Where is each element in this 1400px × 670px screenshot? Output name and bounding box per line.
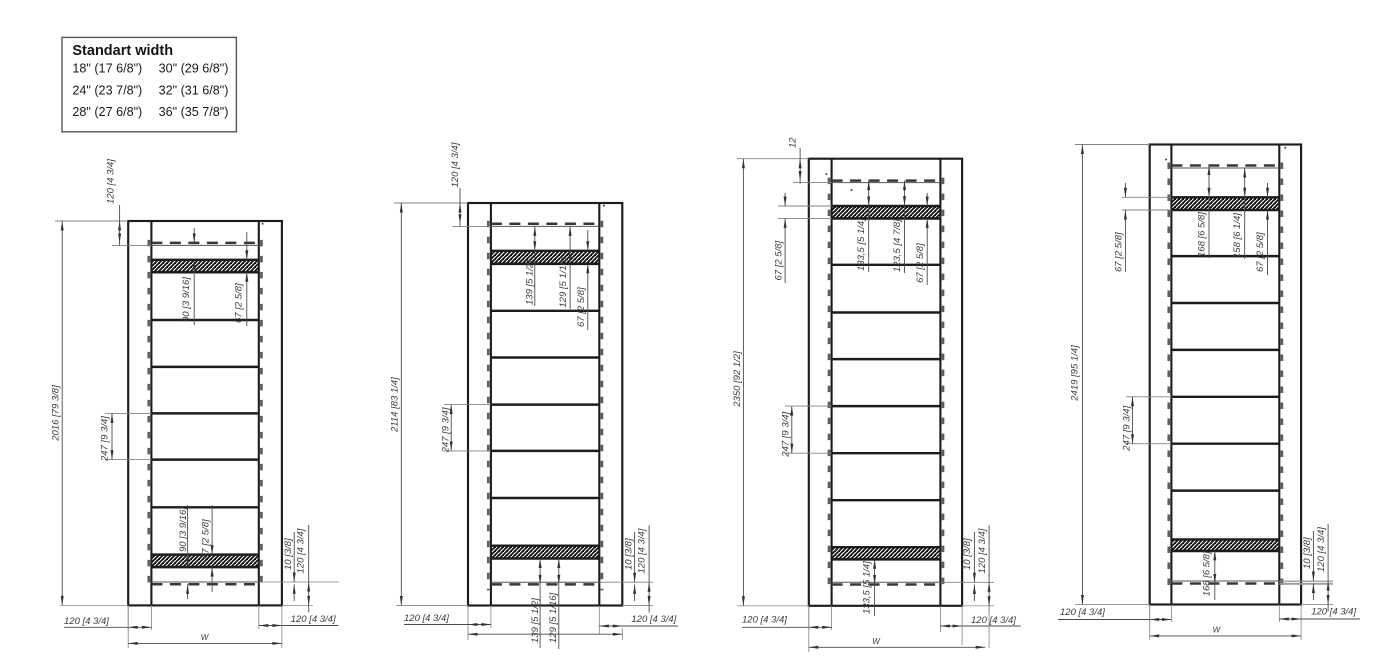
svg-text:133,5 [5 1/4]: 133,5 [5 1/4] <box>862 561 873 614</box>
svg-text:2016 [79 3/8]: 2016 [79 3/8] <box>51 385 62 442</box>
svg-text:129 [5 1/16]: 129 [5 1/16] <box>548 592 559 643</box>
svg-text:28" (27 6/8"): 28" (27 6/8") <box>72 105 142 119</box>
svg-text:12: 12 <box>788 137 799 148</box>
svg-text:158 [6 1/4]: 158 [6 1/4] <box>1232 213 1243 258</box>
svg-text:120 [4 3/4]: 120 [4 3/4] <box>1316 527 1327 572</box>
svg-text:120 [4 3/4]: 120 [4 3/4] <box>971 615 1016 626</box>
svg-text:10 [3/8]: 10 [3/8] <box>283 538 294 570</box>
svg-text:10 [3/8]: 10 [3/8] <box>962 538 973 570</box>
svg-text:67 [2 5/8]: 67 [2 5/8] <box>774 241 785 281</box>
svg-text:2350 [92 1/2]: 2350 [92 1/2] <box>732 351 743 408</box>
svg-text:247 [9 3/4]: 247 [9 3/4] <box>440 407 451 453</box>
svg-text:10 [3/8]: 10 [3/8] <box>1302 537 1313 569</box>
svg-text:67 [2 5/8]: 67 [2 5/8] <box>201 519 212 559</box>
svg-text:120 [4 3/4]: 120 [4 3/4] <box>105 159 116 204</box>
svg-text:133,5 [5 1/4]: 133,5 [5 1/4] <box>856 218 867 271</box>
svg-text:67 [2 5/8]: 67 [2 5/8] <box>576 287 587 327</box>
svg-text:120 [4 3/4]: 120 [4 3/4] <box>450 142 461 187</box>
svg-text:123,5 [4 7/8]: 123,5 [4 7/8] <box>892 219 903 272</box>
svg-text:139 [5 1/2]: 139 [5 1/2] <box>530 598 541 643</box>
svg-text:2419 [95 1/4]: 2419 [95 1/4] <box>1070 345 1081 402</box>
svg-text:120 [4 3/4]: 120 [4 3/4] <box>1060 607 1105 618</box>
svg-text:120 [4 3/4]: 120 [4 3/4] <box>64 616 109 627</box>
svg-text:67 [2 5/8]: 67 [2 5/8] <box>1255 232 1266 272</box>
svg-text:247 [9 3/4]: 247 [9 3/4] <box>100 416 111 462</box>
svg-text:168 [6 5/8]: 168 [6 5/8] <box>1202 551 1213 596</box>
svg-text:120 [4 3/4]: 120 [4 3/4] <box>404 613 449 624</box>
svg-text:120 [4 3/4]: 120 [4 3/4] <box>977 528 988 573</box>
svg-text:67 [2 5/8]: 67 [2 5/8] <box>234 283 245 323</box>
svg-text:129 [5 1/16]: 129 [5 1/16] <box>558 257 569 308</box>
svg-text:139 [5 1/2]: 139 [5 1/2] <box>525 260 536 305</box>
svg-text:120 [4 3/4]: 120 [4 3/4] <box>291 614 336 625</box>
svg-text:120 [4 3/4]: 120 [4 3/4] <box>637 528 648 573</box>
svg-text:2114 [83 1/4]: 2114 [83 1/4] <box>390 377 401 433</box>
svg-text:90 [3 9/16]: 90 [3 9/16] <box>178 507 189 552</box>
svg-text:10 [3/8]: 10 [3/8] <box>624 538 635 570</box>
svg-text:90 [3 9/16]: 90 [3 9/16] <box>181 277 192 322</box>
svg-text:32" (31 6/8"): 32" (31 6/8") <box>159 83 229 97</box>
svg-text:24" (23 7/8"): 24" (23 7/8") <box>72 83 142 97</box>
svg-text:247 [9 3/4]: 247 [9 3/4] <box>780 411 791 457</box>
svg-text:36" (35 7/8"): 36" (35 7/8") <box>159 105 229 119</box>
svg-text:120 [4 3/4]: 120 [4 3/4] <box>296 528 307 573</box>
svg-text:120 [4 3/4]: 120 [4 3/4] <box>1311 607 1356 618</box>
svg-text:30" (29 6/8"): 30" (29 6/8") <box>159 62 229 76</box>
svg-text:120 [4 3/4]: 120 [4 3/4] <box>742 614 787 625</box>
svg-text:18" (17 6/8"): 18" (17 6/8") <box>72 62 142 76</box>
svg-text:168 [6 5/8]: 168 [6 5/8] <box>1197 212 1208 257</box>
svg-text:Standart width: Standart width <box>72 43 173 59</box>
svg-text:67 [2 5/8]: 67 [2 5/8] <box>1114 232 1125 272</box>
svg-text:67 [2 5/8]: 67 [2 5/8] <box>915 243 926 283</box>
svg-text:120 [4 3/4]: 120 [4 3/4] <box>631 614 676 625</box>
svg-text:247 [9 3/4]: 247 [9 3/4] <box>1122 405 1133 451</box>
